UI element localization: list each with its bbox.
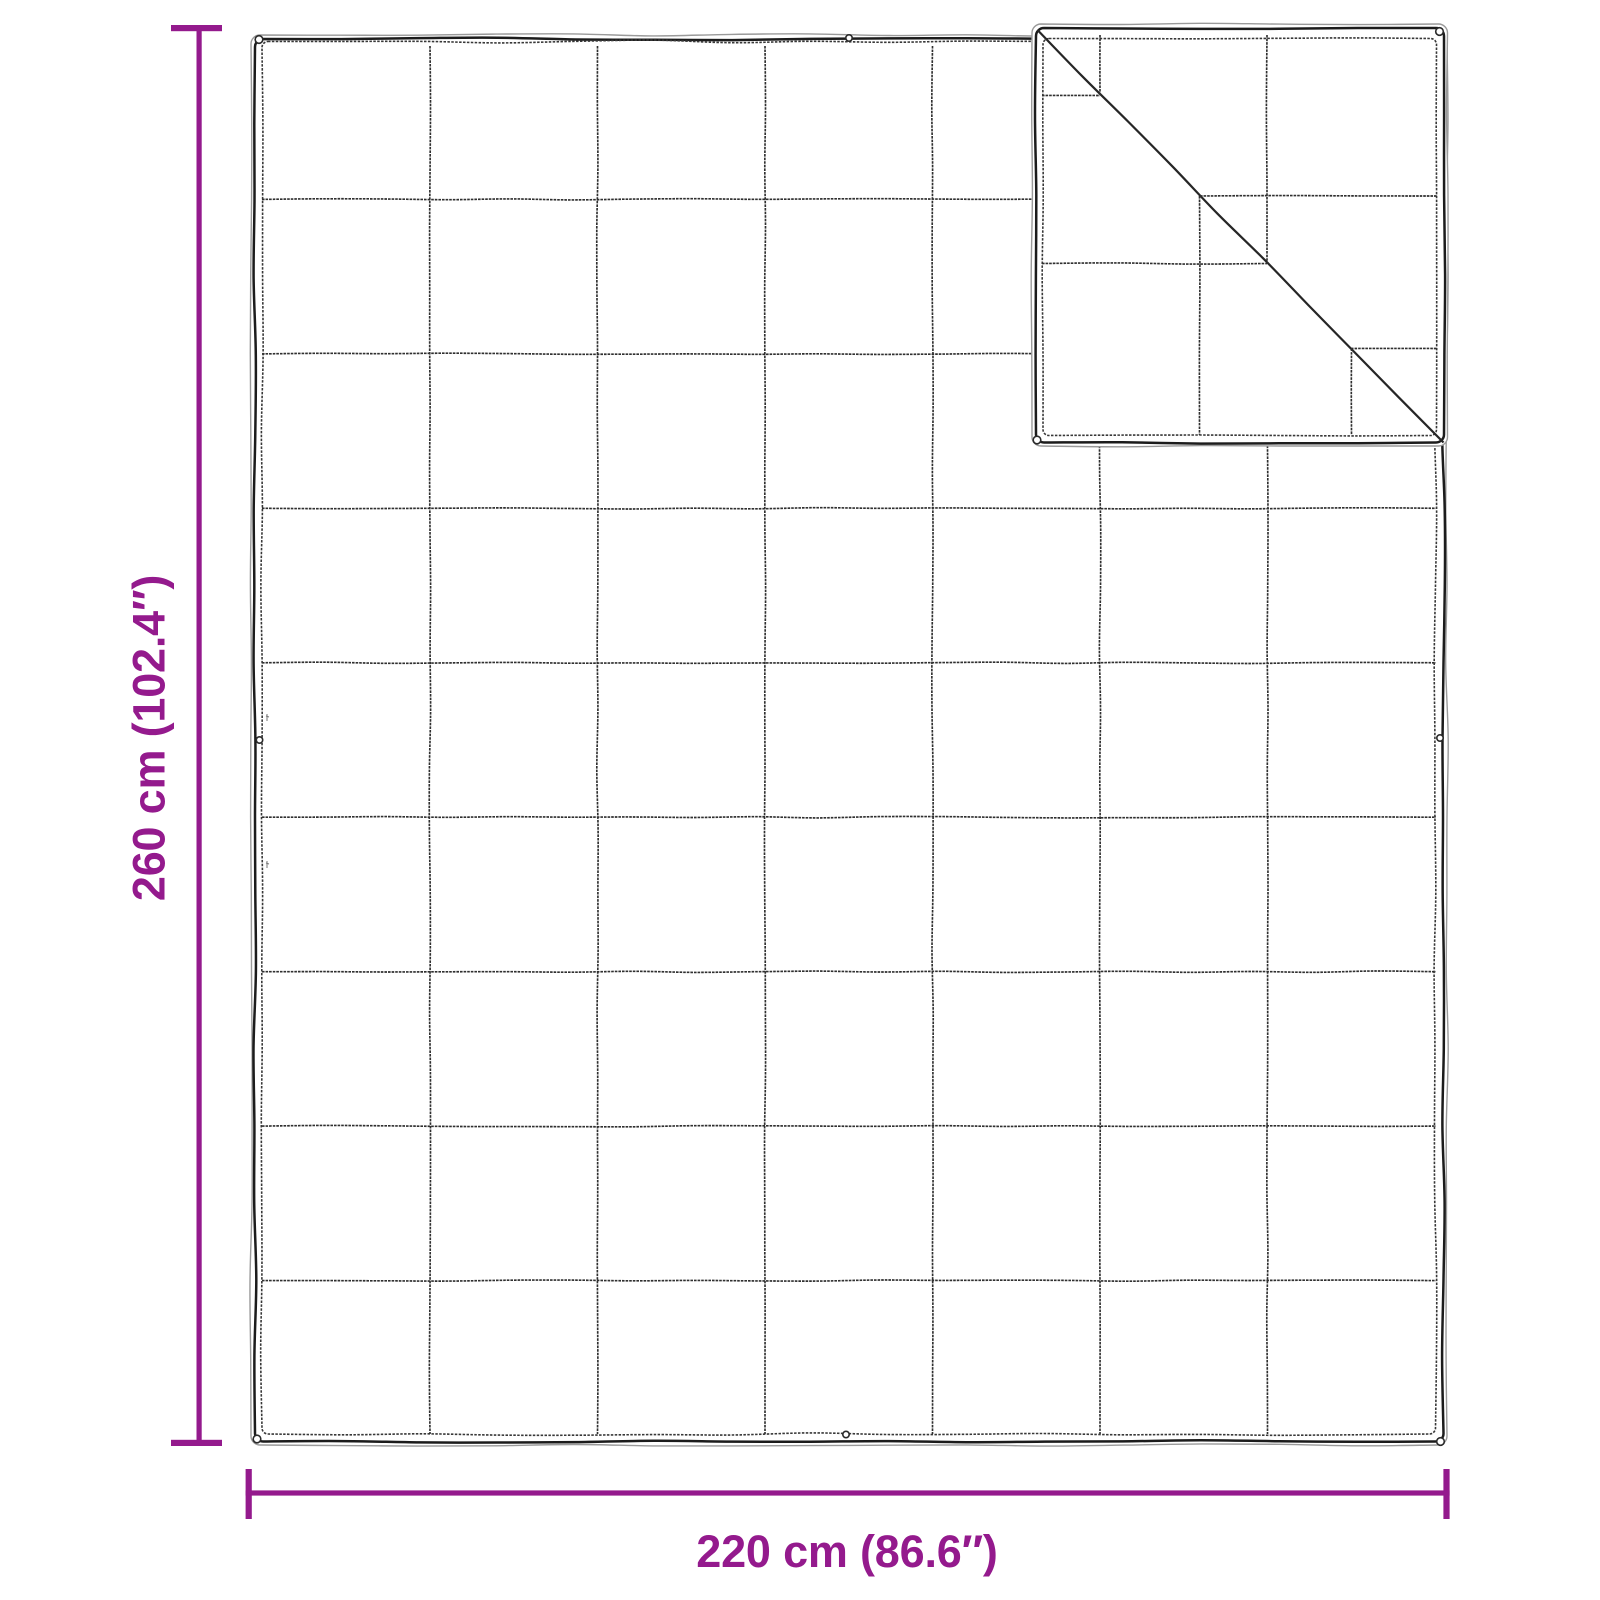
svg-text:260 cm (102.4″): 260 cm (102.4″) — [124, 575, 175, 901]
svg-text:220 cm (86.6″): 220 cm (86.6″) — [696, 1526, 997, 1577]
